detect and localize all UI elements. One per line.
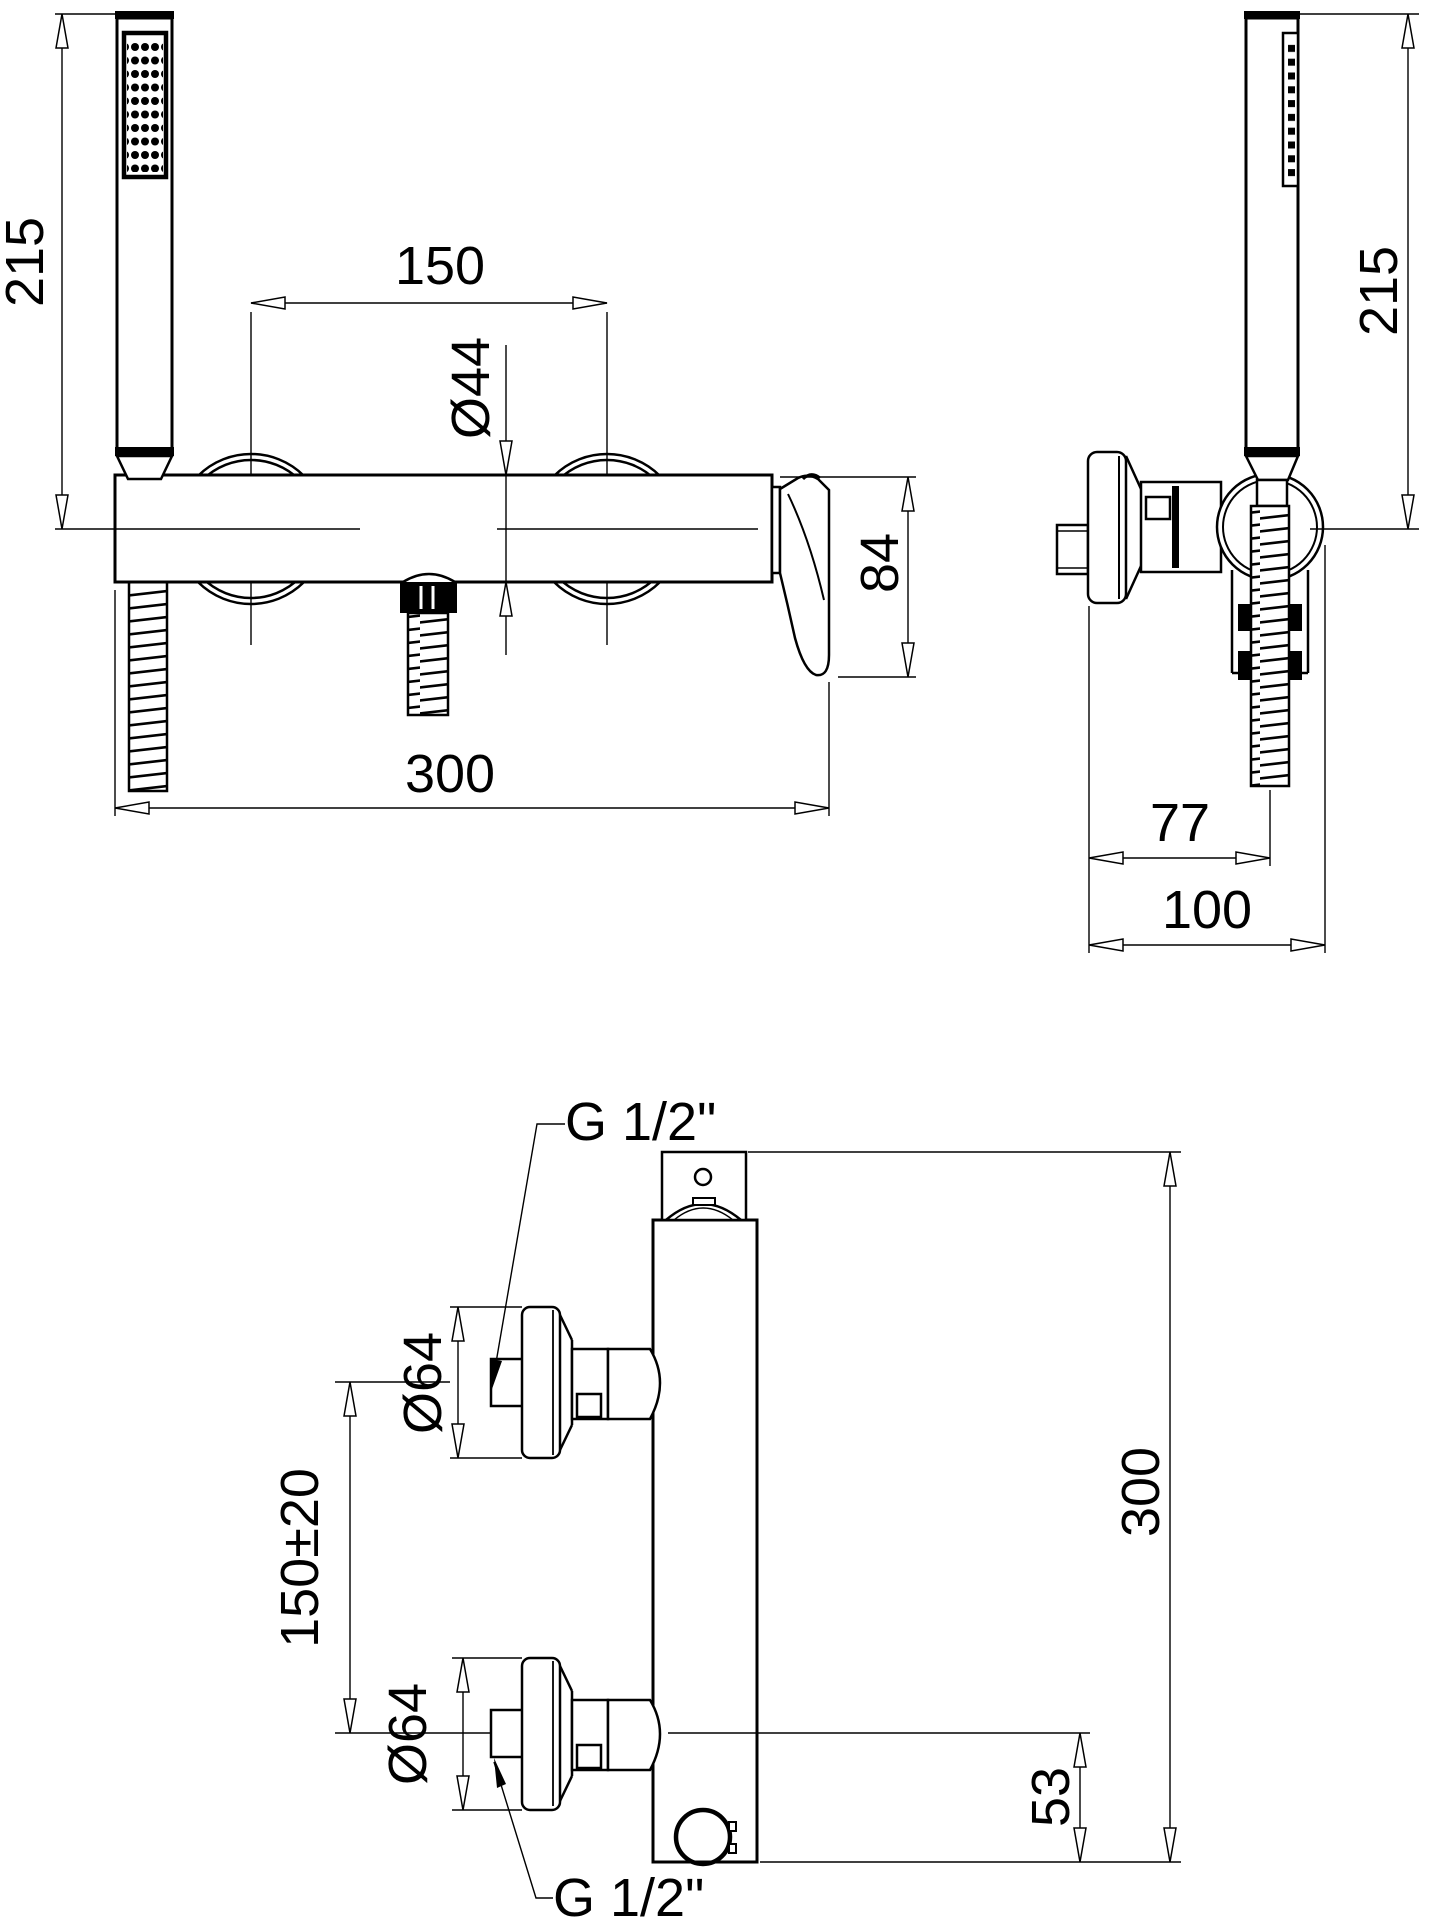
dim-label-o64-bottom: Ø64: [378, 1683, 438, 1785]
shower-mixer-dimension-drawing: 215 150 Ø44 84 300: [0, 0, 1434, 1932]
dim-label-front-o44: Ø44: [441, 337, 501, 439]
inlet-connection-bottom: [491, 1658, 660, 1810]
mixer-body-front: [100, 475, 772, 582]
dim-label-53: 53: [1021, 1767, 1081, 1827]
lever-handle-front: [772, 475, 829, 675]
dim-mounting-height-300: 300: [748, 1152, 1181, 1862]
thread-label-top-text: G 1/2": [565, 1092, 716, 1152]
dim-label-o64-top: Ø64: [393, 1332, 453, 1434]
front-view: 215 150 Ø44 84 300: [0, 11, 916, 816]
outlet-hose-center-front: [400, 574, 457, 715]
mixer-body-mounting: [653, 1152, 757, 1862]
dim-outlet-offset-53: 53: [1021, 1733, 1086, 1862]
dim-label-front-215: 215: [0, 217, 55, 307]
mixer-body-side: [1141, 482, 1221, 572]
dim-label-side-77: 77: [1150, 793, 1210, 853]
technical-drawing-page: 215 150 Ø44 84 300: [0, 0, 1434, 1932]
wall-fitting-side: [1057, 452, 1141, 603]
inlet-connection-top: [491, 1307, 660, 1458]
mounting-view: G 1/2" G 1/2" Ø64 Ø64: [270, 1092, 1181, 1928]
dim-label-side-215: 215: [1349, 246, 1409, 336]
dim-front-width-300: 300: [115, 590, 829, 816]
dim-side-height-215: 215: [1298, 14, 1419, 529]
handshower-wand-front: [115, 11, 174, 479]
dim-label-front-300: 300: [405, 744, 495, 804]
dim-front-height-215: 215: [0, 14, 117, 529]
side-view: 215 77 100: [1057, 11, 1419, 953]
dim-label-front-150: 150: [395, 236, 485, 296]
dim-label-side-100: 100: [1162, 880, 1252, 940]
dim-label-mounting-300: 300: [1111, 1447, 1171, 1537]
handshower-wand-side: [1244, 11, 1300, 506]
dim-label-front-84: 84: [850, 533, 910, 593]
thread-label-bottom-text: G 1/2": [553, 1868, 704, 1928]
dim-front-spacing-150: 150: [251, 236, 607, 309]
dim-label-150-20: 150±20: [270, 1468, 330, 1648]
